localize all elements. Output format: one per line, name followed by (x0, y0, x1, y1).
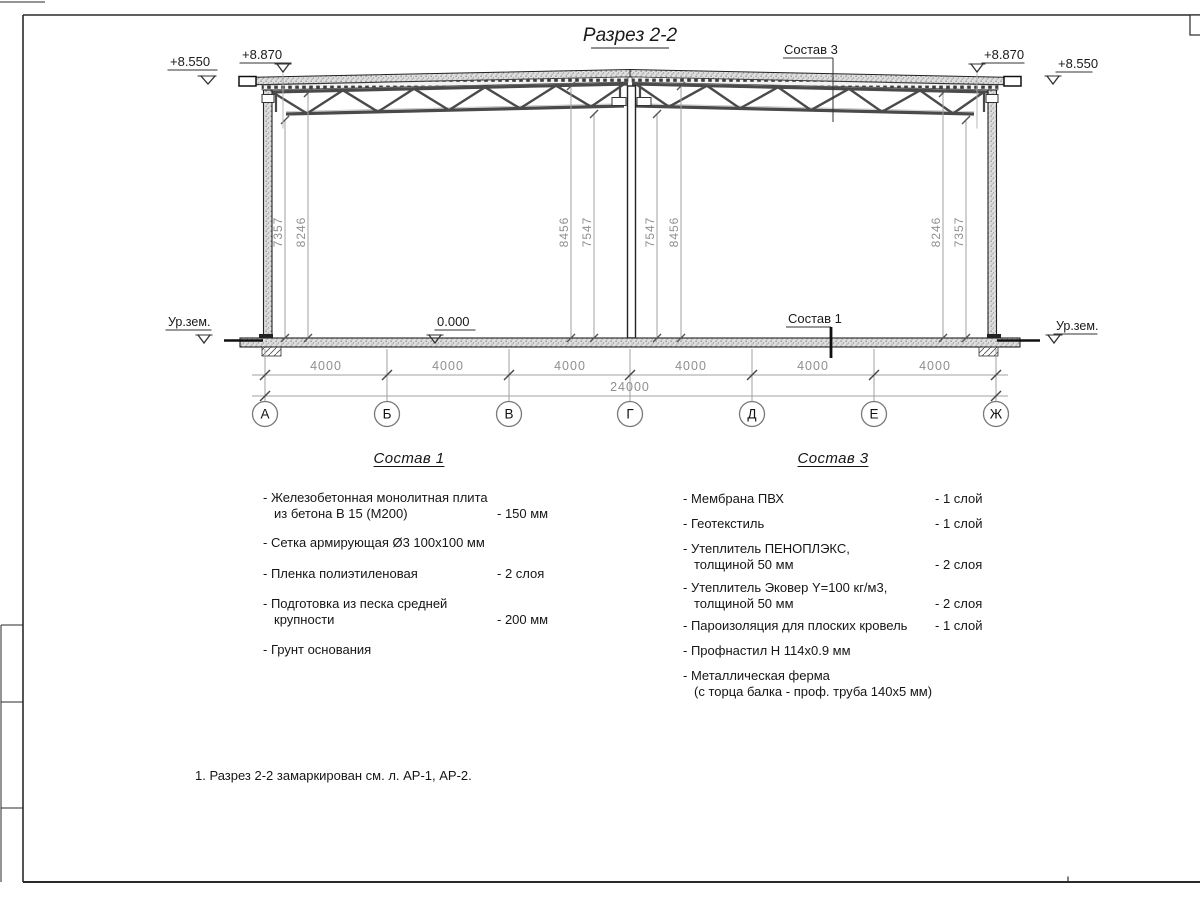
axis-label: Е (869, 407, 878, 422)
item-value: - 2 слоя (497, 566, 544, 582)
item-value: - 2 слоя (935, 596, 982, 612)
drawing-frame (0, 2, 1200, 882)
list-item: - Профнастил Н 114х0.9 мм (683, 643, 983, 659)
item-text: - Утеплитель ПЕНОПЛЭКС, (683, 541, 850, 556)
item-value: - 150 мм (497, 506, 548, 522)
vdim-label: 8246 (294, 217, 308, 248)
list-item: - Железобетонная монолитная плита из бет… (263, 490, 555, 521)
section-drawing: Разрез 2-2 (0, 0, 1200, 900)
item-text: - Пленка полиэтиленовая (263, 566, 418, 581)
vdim-label: 7357 (271, 217, 285, 248)
vdim-label: 7547 (580, 217, 594, 248)
bearing-pad-right (986, 95, 998, 103)
vertical-dimensions: 7357 8246 8456 7547 7547 8456 8246 7357 (271, 82, 970, 342)
list-item: - Утеплитель Эковер Y=100 кг/м3, толщино… (683, 580, 983, 611)
list-item: - Пленка полиэтиленовая - 2 слоя (263, 566, 555, 582)
elevation-right-outer-value: +8.550 (1058, 56, 1098, 71)
ground-level-mark-right: Ур.зем. (1046, 319, 1098, 343)
hdim-label: 4000 (797, 359, 829, 373)
vdim-label: 8456 (557, 217, 571, 248)
item-text: - Металлическая ферма (683, 668, 830, 683)
elevation-mark-left-outer: +8.550 (168, 54, 217, 84)
item-value: - 2 слоя (935, 557, 982, 573)
list-item: - Подготовка из песка средней крупности … (263, 596, 555, 627)
footing-right (979, 347, 998, 356)
item-value: - 1 слой (935, 491, 983, 507)
column-right (988, 90, 997, 338)
zero-level-value: 0.000 (437, 314, 470, 329)
leader-roof-label: Состав 3 (784, 42, 838, 57)
list-item: - Мембрана ПВХ - 1 слой (683, 491, 983, 507)
elevation-mark-right-outer: +8.550 (1045, 56, 1098, 84)
list-item: - Пароизоляция для плоских кровель - 1 с… (683, 618, 983, 634)
columns (259, 86, 1001, 339)
axis-label: Г (626, 407, 634, 422)
bearing-pad-center-r (637, 98, 651, 106)
list-item: - Сетка армирующая Ø3 100х100 мм (263, 535, 555, 551)
item-text: - Мембрана ПВХ (683, 491, 784, 506)
vdim-label: 8246 (929, 217, 943, 248)
vdim-label: 7357 (952, 217, 966, 248)
sostav-1-heading: Состав 1 (263, 451, 555, 467)
sostav-1-block: Состав 1 - Железобетонная монолитная пли… (263, 451, 555, 666)
hdim-label: 4000 (554, 359, 586, 373)
axis-label: Ж (990, 407, 1003, 422)
sostav-3-heading: Состав 3 (683, 451, 983, 467)
hdim-label: 4000 (310, 359, 342, 373)
item-value: - 1 слой (935, 516, 983, 532)
list-item: - Грунт основания (263, 642, 555, 658)
total-dim-label: 24000 (610, 380, 650, 394)
ground-left-label: Ур.зем. (168, 315, 210, 329)
item-text: - Геотекстиль (683, 516, 764, 531)
list-item: - Геотекстиль - 1 слой (683, 516, 983, 532)
horizontal-dimensions: 4000 4000 4000 4000 4000 4000 24000 (252, 349, 1008, 401)
item-text: - Грунт основания (263, 642, 371, 657)
elevation-right-inner-value: +8.870 (984, 47, 1024, 62)
sostav-3-block: Состав 3 - Мембрана ПВХ - 1 слой - Геоте… (683, 451, 983, 701)
column-left (264, 90, 273, 338)
bearing-pad-left (262, 95, 274, 103)
axis-bubbles: А Б В Г Д Е Ж (253, 402, 1009, 427)
list-item: - Утеплитель ПЕНОПЛЭКС, толщиной 50 мм -… (683, 541, 983, 572)
axis-label: Б (383, 407, 392, 422)
item-text: - Железобетонная монолитная плита (263, 490, 488, 505)
drawing-note: 1. Разрез 2-2 замаркирован см. л. АР-1, … (195, 768, 472, 783)
item-value: - 200 мм (497, 612, 548, 628)
item-text: - Утеплитель Эковер Y=100 кг/м3, (683, 580, 887, 595)
page-title: Разрез 2-2 (583, 25, 678, 46)
eave-cap-left (239, 77, 256, 87)
elevation-left-inner-value: +8.870 (242, 47, 282, 62)
item-text: - Профнастил Н 114х0.9 мм (683, 643, 851, 658)
item-text: - Сетка армирующая Ø3 100х100 мм (263, 535, 485, 550)
vdim-label: 8456 (667, 217, 681, 248)
ground-level-mark-left: Ур.зем. (166, 315, 212, 343)
axis-label: Д (747, 407, 756, 422)
eave-cap-right (1004, 77, 1021, 87)
column-center (628, 86, 636, 338)
item-text: - Пароизоляция для плоских кровель (683, 618, 907, 633)
ground-right-label: Ур.зем. (1056, 319, 1098, 333)
list-item: - Металлическая ферма (с торца балка - п… (683, 668, 983, 699)
item-text: - Подготовка из песка средней (263, 596, 447, 611)
elevation-left-outer-value: +8.550 (170, 54, 210, 69)
hdim-label: 4000 (919, 359, 951, 373)
axis-label: В (504, 407, 513, 422)
hdim-label: 4000 (432, 359, 464, 373)
floor-slab (224, 338, 1040, 356)
leader-sostav-1: Состав 1 (786, 311, 842, 358)
frame-corner-box (1190, 15, 1200, 35)
section-title: Разрез 2-2 (583, 25, 678, 48)
axis-label: А (260, 407, 269, 422)
drawing-sheet: Разрез 2-2 (0, 0, 1200, 900)
vdim-label: 7547 (643, 217, 657, 248)
bearing-pad-center-l (612, 98, 626, 106)
item-value: - 1 слой (935, 618, 983, 634)
leader-floor-label: Состав 1 (788, 311, 842, 326)
item-text-2: (с торца балка - проф. труба 140х5 мм) (683, 684, 983, 700)
hdim-label: 4000 (675, 359, 707, 373)
